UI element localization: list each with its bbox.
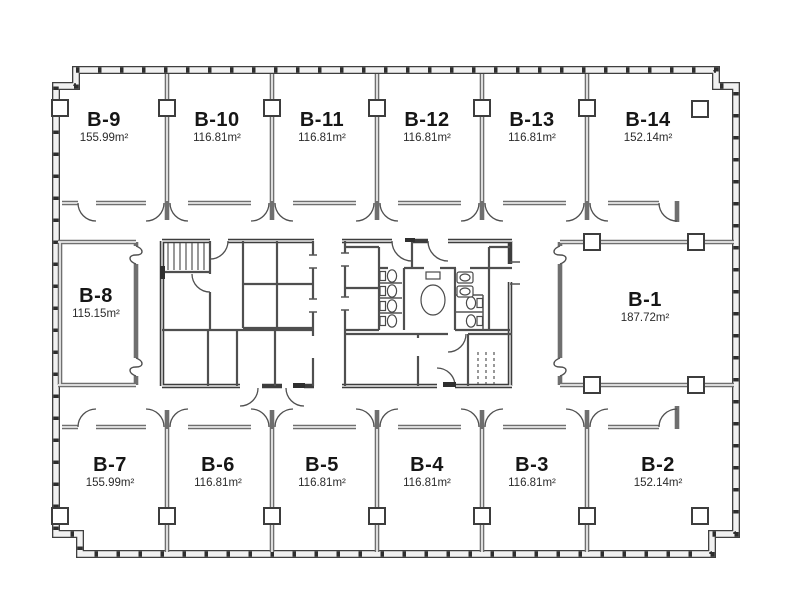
room-label-b13: B-13 116.81m² <box>508 109 556 146</box>
room-area: 116.81m² <box>403 131 451 146</box>
floor-plan-drawing <box>0 0 800 600</box>
room-area: 115.15m² <box>72 307 120 322</box>
room-area: 155.99m² <box>86 476 135 491</box>
room-label-b11: B-11 116.81m² <box>298 109 346 146</box>
room-label-b1: B-1 187.72m² <box>621 289 670 326</box>
room-name: B-7 <box>86 454 135 476</box>
room-area: 152.14m² <box>634 476 683 491</box>
room-area: 116.81m² <box>298 131 346 146</box>
room-name: B-5 <box>298 454 346 476</box>
room-label-b3: B-3 116.81m² <box>508 454 556 491</box>
room-label-b8: B-8 115.15m² <box>72 285 120 322</box>
room-name: B-8 <box>72 285 120 307</box>
room-label-b4: B-4 116.81m² <box>403 454 451 491</box>
room-label-b9: B-9 155.99m² <box>80 109 129 146</box>
room-label-b14: B-14 152.14m² <box>624 109 673 146</box>
room-name: B-9 <box>80 109 129 131</box>
room-area: 155.99m² <box>80 131 129 146</box>
room-label-b2: B-2 152.14m² <box>634 454 683 491</box>
core-interior-walls <box>162 241 512 386</box>
room-label-b6: B-6 116.81m² <box>194 454 242 491</box>
toilet-stalls <box>379 270 494 384</box>
room-name: B-14 <box>624 109 673 131</box>
room-name: B-10 <box>193 109 241 131</box>
room-area: 116.81m² <box>194 476 242 491</box>
room-name: B-6 <box>194 454 242 476</box>
room-area: 116.81m² <box>403 476 451 491</box>
staircase <box>168 243 204 270</box>
room-name: B-12 <box>403 109 451 131</box>
room-name: B-2 <box>634 454 683 476</box>
room-label-b10: B-10 116.81m² <box>193 109 241 146</box>
room-name: B-1 <box>621 289 670 311</box>
room-name: B-13 <box>508 109 556 131</box>
room-label-b12: B-12 116.81m² <box>403 109 451 146</box>
core-walls <box>162 241 512 386</box>
room-label-b7: B-7 155.99m² <box>86 454 135 491</box>
room-area: 116.81m² <box>193 131 241 146</box>
room-area: 116.81m² <box>508 476 556 491</box>
room-area: 187.72m² <box>621 311 670 326</box>
room-name: B-11 <box>298 109 346 131</box>
floor-plan: B-9 155.99m² B-10 116.81m² B-11 116.81m²… <box>0 0 800 600</box>
room-name: B-3 <box>508 454 556 476</box>
room-area: 116.81m² <box>508 131 556 146</box>
room-name: B-4 <box>403 454 451 476</box>
room-area: 152.14m² <box>624 131 673 146</box>
room-label-b5: B-5 116.81m² <box>298 454 346 491</box>
room-area: 116.81m² <box>298 476 346 491</box>
